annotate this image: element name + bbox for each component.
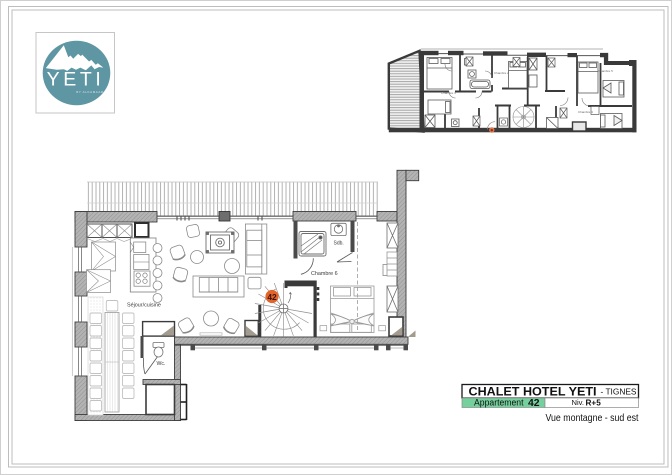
- svg-text:Appartement: Appartement: [474, 398, 524, 408]
- svg-text:Séjour/cuisine: Séjour/cuisine: [127, 303, 161, 309]
- svg-text:YETI: YETI: [47, 69, 105, 91]
- svg-text:42: 42: [267, 292, 277, 302]
- svg-text:CHALET HOTEL YETI: CHALET HOTEL YETI: [469, 384, 597, 398]
- svg-text:Chambre 6: Chambre 6: [311, 271, 338, 277]
- svg-text:R+5: R+5: [586, 398, 602, 407]
- svg-text:Sdb.: Sdb.: [334, 241, 344, 247]
- svg-text:- TIGNES: - TIGNES: [601, 387, 637, 397]
- svg-text:Chambre 5: Chambre 5: [598, 69, 613, 73]
- svg-text:Vue montagne - sud est: Vue montagne - sud est: [546, 413, 639, 424]
- svg-text:Wc.: Wc.: [157, 361, 166, 367]
- svg-text:Niv.: Niv.: [572, 398, 585, 407]
- svg-text:BY ALKAMAAR: BY ALKAMAAR: [76, 90, 104, 94]
- svg-text:Chambre 4: Chambre 4: [578, 110, 593, 114]
- svg-text:Chambre 2: Chambre 2: [494, 71, 509, 75]
- svg-text:42: 42: [528, 398, 540, 409]
- svg-text:Chambre 3: Chambre 3: [441, 91, 456, 95]
